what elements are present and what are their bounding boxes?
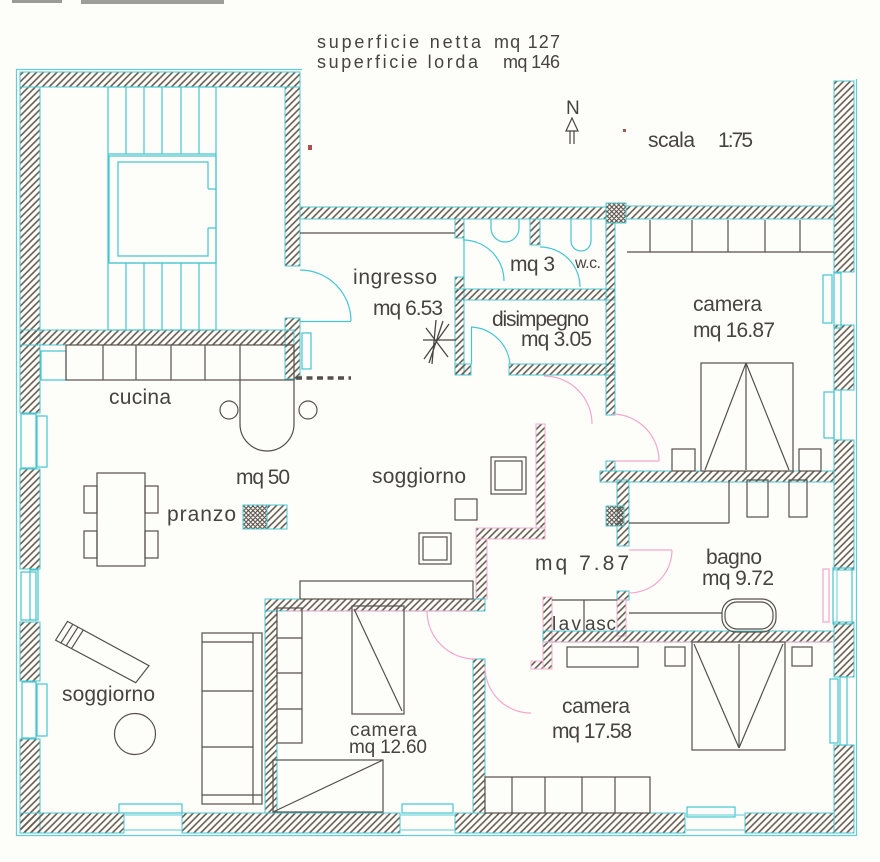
svg-text:camera: camera bbox=[562, 695, 630, 718]
svg-text:mq 9.72: mq 9.72 bbox=[702, 567, 774, 590]
svg-text:cucina: cucina bbox=[109, 386, 171, 409]
svg-text:superficie lorda: superficie lorda bbox=[317, 52, 479, 72]
svg-text:w.c.: w.c. bbox=[574, 255, 601, 272]
svg-text:mq 6.53: mq 6.53 bbox=[373, 297, 443, 320]
svg-text:soggiorno: soggiorno bbox=[62, 683, 155, 706]
svg-text:1:75: 1:75 bbox=[718, 129, 753, 152]
svg-text:asc: asc bbox=[585, 614, 616, 635]
svg-text:ingresso: ingresso bbox=[353, 266, 437, 289]
svg-text:camera: camera bbox=[693, 293, 762, 316]
svg-text:mq 3.05: mq 3.05 bbox=[521, 328, 592, 351]
svg-text:soggiorno: soggiorno bbox=[372, 465, 466, 488]
svg-text:mq 17.58: mq 17.58 bbox=[552, 720, 632, 743]
svg-text:N: N bbox=[566, 98, 580, 119]
svg-text:mq 127: mq 127 bbox=[494, 32, 560, 52]
svg-text:scala: scala bbox=[648, 129, 695, 152]
svg-text:mq 50: mq 50 bbox=[236, 466, 290, 489]
svg-text:mq 12.60: mq 12.60 bbox=[349, 737, 427, 758]
svg-text:mq 146: mq 146 bbox=[503, 52, 560, 72]
svg-text:mq 16.87: mq 16.87 bbox=[693, 319, 775, 342]
svg-text:superficie netta: superficie netta bbox=[317, 32, 482, 52]
svg-text:pranzo: pranzo bbox=[167, 503, 236, 526]
svg-text:bagno: bagno bbox=[706, 546, 762, 569]
svg-text:mq 3: mq 3 bbox=[510, 253, 555, 276]
